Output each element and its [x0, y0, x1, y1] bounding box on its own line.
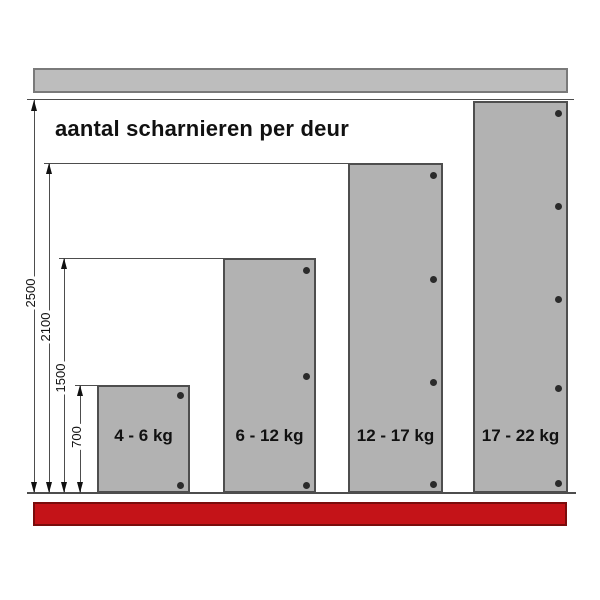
extension-line [44, 163, 348, 164]
diagram-title: aantal scharnieren per deur [55, 116, 349, 142]
top-rail [33, 68, 568, 93]
extension-line [59, 258, 223, 259]
hinge-dot [555, 203, 562, 210]
hinge-dot [555, 385, 562, 392]
dimension-arrow-up-icon [31, 100, 37, 111]
hinge-dot [177, 392, 184, 399]
dimension-arrow-down-icon [46, 482, 52, 493]
hinge-dot [177, 482, 184, 489]
door-label: 6 - 12 kg [223, 426, 316, 446]
dimension-arrow-down-icon [61, 482, 67, 493]
dimension-label: 2100 [39, 311, 53, 344]
hinge-dot [430, 379, 437, 386]
dimension-label: 2500 [24, 277, 38, 310]
hinge-dot [555, 110, 562, 117]
hinge-dot [430, 481, 437, 488]
dimension-arrow-down-icon [77, 482, 83, 493]
hinge-dot [555, 480, 562, 487]
dimension-arrow-up-icon [61, 258, 67, 269]
door-label: 4 - 6 kg [97, 426, 190, 446]
dimension-arrow-up-icon [46, 163, 52, 174]
ceiling-line [27, 99, 574, 100]
hinge-dot [303, 267, 310, 274]
dimension-arrow-up-icon [77, 385, 83, 396]
hinge-dot [430, 172, 437, 179]
hinge-dot [430, 276, 437, 283]
hinge-dot [303, 373, 310, 380]
floor-bar [33, 502, 567, 526]
dimension-label: 700 [70, 424, 84, 450]
door-label: 17 - 22 kg [473, 426, 568, 446]
dimension-arrow-down-icon [31, 482, 37, 493]
hinge-dot [303, 482, 310, 489]
dimension-label: 1500 [54, 362, 68, 395]
hinge-dot [555, 296, 562, 303]
hinge-diagram: aantal scharnieren per deur 4 - 6 kg6 - … [0, 0, 600, 600]
door-label: 12 - 17 kg [348, 426, 443, 446]
